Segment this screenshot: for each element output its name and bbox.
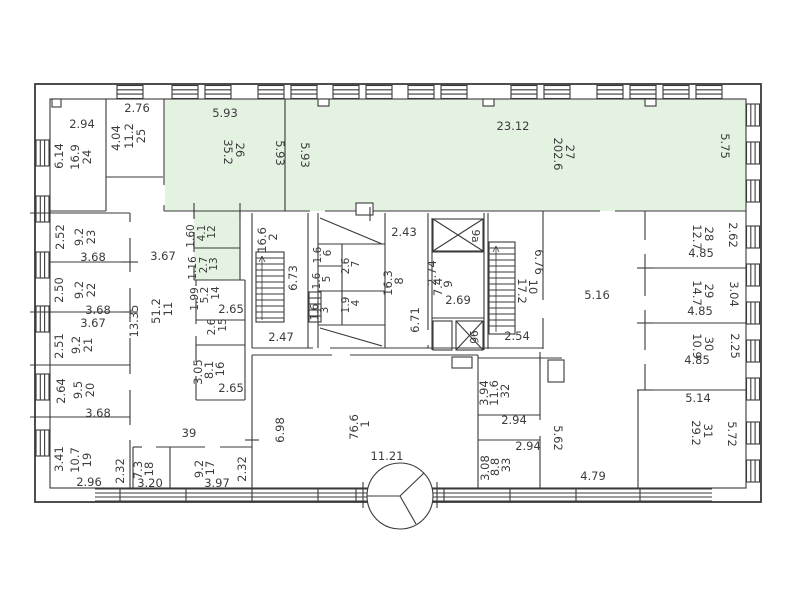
- corridor-11-length: 13.35: [127, 305, 141, 338]
- room-18-bottom: 3.20: [137, 476, 163, 490]
- room-5-area: 1.6: [311, 272, 323, 289]
- room-26-height: 5.93: [273, 140, 287, 166]
- room-24-area: 16.9: [68, 144, 82, 170]
- room-19-height: 3.41: [52, 446, 66, 472]
- room-31-height: 5.72: [725, 421, 739, 447]
- room-16-height: 3.05: [191, 359, 205, 385]
- room-13-height: 1.16: [187, 256, 199, 280]
- room-27-height-left: 5.93: [298, 142, 312, 168]
- room-20-bottom: 3.68: [85, 406, 111, 420]
- room-22-number: 22: [84, 283, 98, 298]
- room-17-side: 2.32: [235, 456, 249, 482]
- room-6-area: 1.6: [312, 246, 324, 263]
- room-30-height: 2.25: [728, 333, 742, 359]
- room-19-number: 19: [80, 453, 94, 468]
- room-23-area: 9.2: [72, 228, 86, 246]
- room-25-height: 4.04: [109, 125, 123, 151]
- room-15-area: 2.6: [206, 318, 218, 335]
- room-16-bottom: 2.65: [218, 381, 244, 395]
- room-10-area: 17.2: [515, 278, 529, 304]
- room-20-height: 2.64: [54, 378, 68, 404]
- room-32-height: 3.94: [477, 380, 491, 406]
- room-8-width: 2.43: [391, 225, 417, 239]
- room-21-number: 21: [81, 338, 95, 353]
- room-27-width: 23.12: [497, 119, 530, 133]
- room-24-number: 24: [80, 150, 94, 165]
- room-1-area: 76.6: [347, 414, 361, 440]
- entrance-circle: [367, 463, 433, 529]
- room-22-bottom: 3.68: [85, 303, 111, 317]
- room-31-area: 29.2: [689, 420, 703, 446]
- room-23-number: 23: [84, 230, 98, 245]
- room-27-area: 202.6: [551, 138, 565, 171]
- room-8-area: 16.3: [381, 270, 395, 296]
- room-33-height: 3.08: [478, 455, 492, 481]
- room-19-area: 10.7: [68, 447, 82, 473]
- room-27-highlight: [285, 99, 746, 211]
- elevator-9a-label: 9а: [469, 229, 481, 242]
- room-10-length: 6.76: [532, 249, 546, 275]
- stair-10: [489, 242, 515, 334]
- room-29-area: 14.7: [690, 280, 704, 306]
- room-26-area: 35.2: [221, 139, 235, 165]
- corridor-39-number: 39: [182, 426, 197, 440]
- room-20-area: 9.5: [71, 381, 85, 399]
- room-21-top: 3.67: [80, 316, 106, 330]
- room-14-bottom: 2.65: [218, 302, 244, 316]
- hall-area: 5.16: [584, 288, 610, 302]
- windows-top: [117, 86, 722, 99]
- hall-height: 5.62: [551, 425, 565, 451]
- room-31-top: 5.14: [685, 391, 711, 405]
- floor-plan-drawing: 2.94 24 16.9 6.14 2.76 25 11.2 4.04 5.93…: [0, 0, 800, 600]
- corridor-11-number: 11: [161, 302, 175, 317]
- room-20-number: 20: [83, 383, 97, 398]
- room-14-height: 1.99: [189, 287, 201, 310]
- elevator-9b-label: 9б: [467, 330, 479, 343]
- room-1-height: 6.98: [273, 417, 287, 443]
- room-9-area: 7.4: [431, 278, 445, 296]
- room-29-bottom: 4.85: [687, 304, 713, 318]
- stair-2: [256, 252, 284, 322]
- room-27-height: 5.75: [718, 133, 732, 159]
- room-24-height: 6.14: [52, 143, 66, 169]
- room-8-height: 6.71: [408, 307, 422, 333]
- room-2-area: 16.6: [255, 227, 269, 253]
- room-12-height: 1.60: [185, 224, 197, 247]
- room-7-area: 2.6: [340, 257, 352, 274]
- room-13-area: 2.7: [198, 257, 210, 274]
- windows-right: [747, 104, 760, 482]
- corridor-11-area: 51.2: [149, 298, 163, 324]
- room-10-width: 2.54: [504, 329, 530, 343]
- room-2-height: 6.73: [286, 265, 300, 291]
- room-1-width: 11.21: [371, 449, 404, 463]
- room-21-height: 2.51: [52, 333, 66, 359]
- hall-width: 4.79: [580, 469, 606, 483]
- room-30-bottom: 4.85: [684, 353, 710, 367]
- room-18-side: 2.32: [113, 458, 127, 484]
- room-19-bottom: 2.96: [76, 475, 102, 489]
- room-17-bottom: 3.97: [204, 476, 230, 490]
- room-14-number: 14: [210, 286, 222, 300]
- room-15-number: 15: [217, 318, 229, 331]
- vestibule-top-width: 2.94: [501, 413, 527, 427]
- room-23-bottom: 3.68: [80, 250, 106, 264]
- room-22-height: 2.50: [52, 277, 66, 303]
- room-24-width: 2.94: [69, 117, 95, 131]
- room-25-area: 11.2: [122, 123, 136, 149]
- room-21-area: 9.2: [69, 336, 83, 354]
- room-28-height: 2.62: [726, 222, 740, 248]
- room-3-area: 1.6: [309, 303, 321, 320]
- room-2-width: 2.47: [268, 330, 294, 344]
- floor-plan: 2.94 24 16.9 6.14 2.76 25 11.2 4.04 5.93…: [0, 0, 800, 600]
- room-25-width: 2.76: [124, 101, 150, 115]
- room-12-area: 4.1: [196, 225, 208, 242]
- vestibule-bottom-width: 2.94: [515, 439, 541, 453]
- room-4-area: 1.9: [340, 297, 352, 314]
- room-26-width: 5.93: [212, 106, 238, 120]
- room-29-height: 3.04: [727, 281, 741, 307]
- room-28-bottom: 4.85: [688, 246, 714, 260]
- corridor-11-width: 3.67: [150, 249, 176, 263]
- room-9-bottom: 2.69: [445, 293, 471, 307]
- room-23-height: 2.52: [53, 224, 67, 250]
- room-25-number: 25: [134, 129, 148, 144]
- room-22-area: 9.2: [72, 281, 86, 299]
- windows-left: [36, 140, 49, 456]
